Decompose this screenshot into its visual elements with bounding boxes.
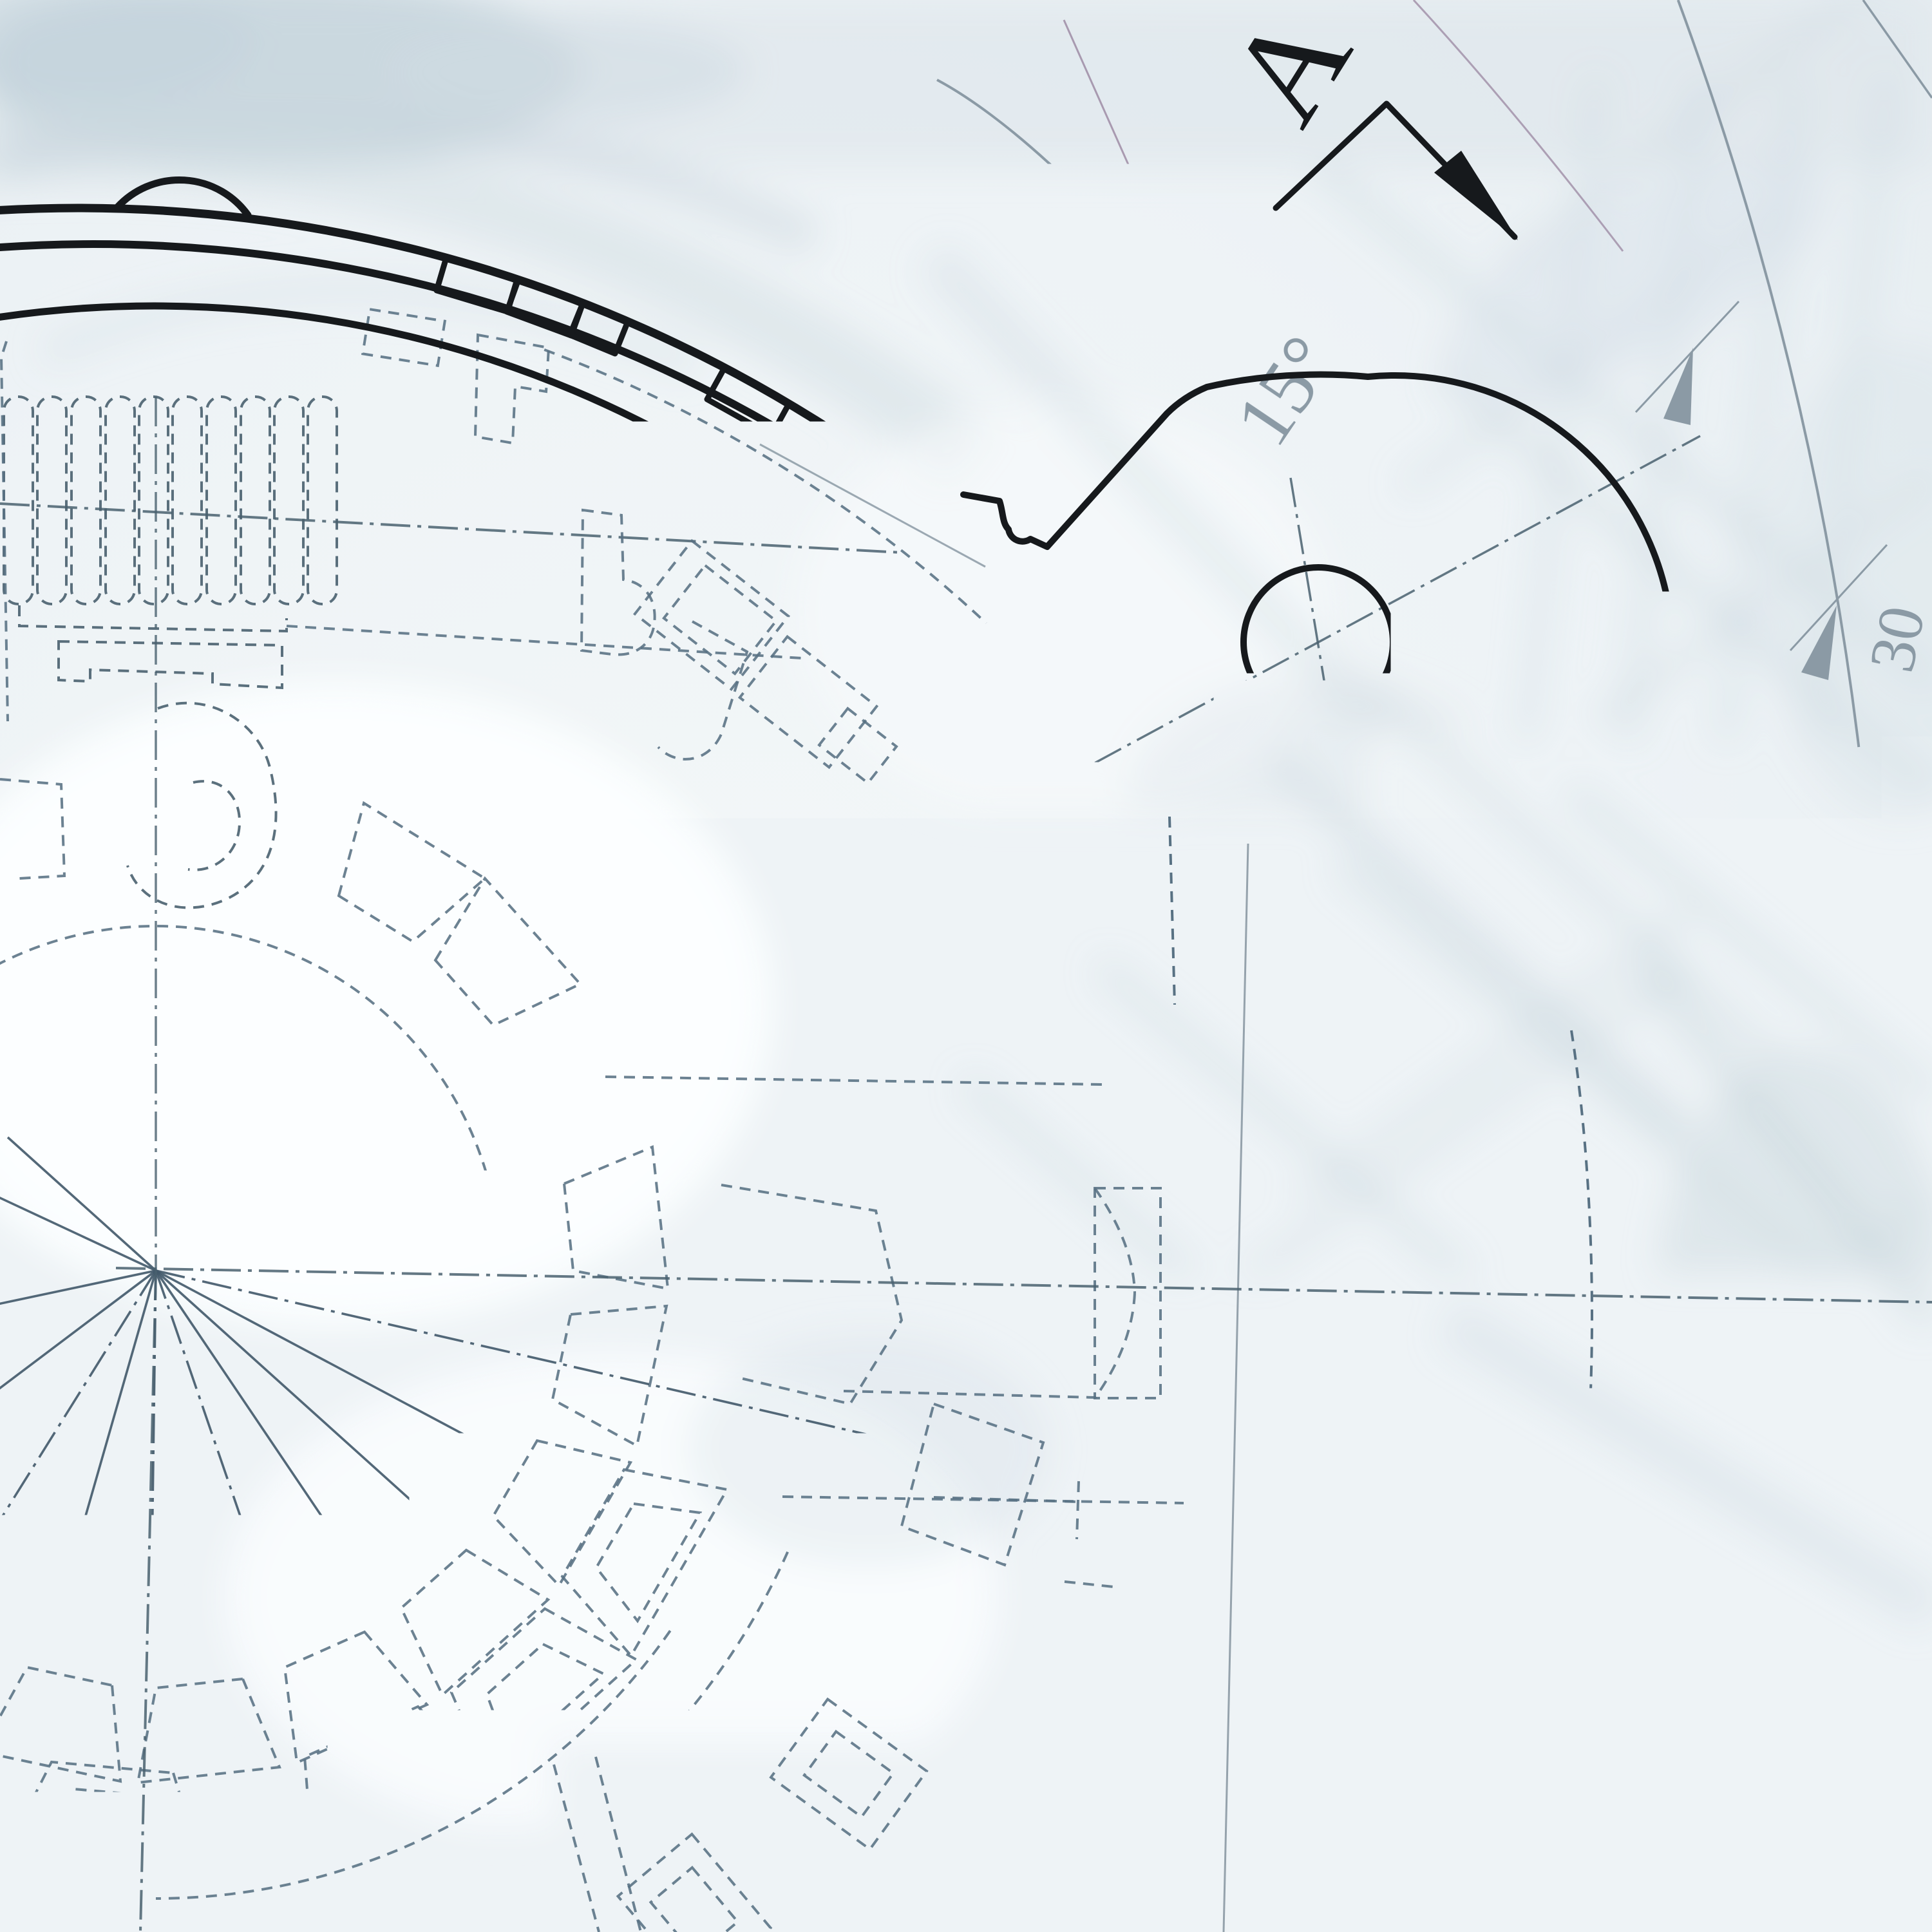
svg-text:Intentional Ambience: Intentional Ambience <box>228 1147 1080 1256</box>
svg-text:cerkit: cerkit <box>232 979 545 1132</box>
